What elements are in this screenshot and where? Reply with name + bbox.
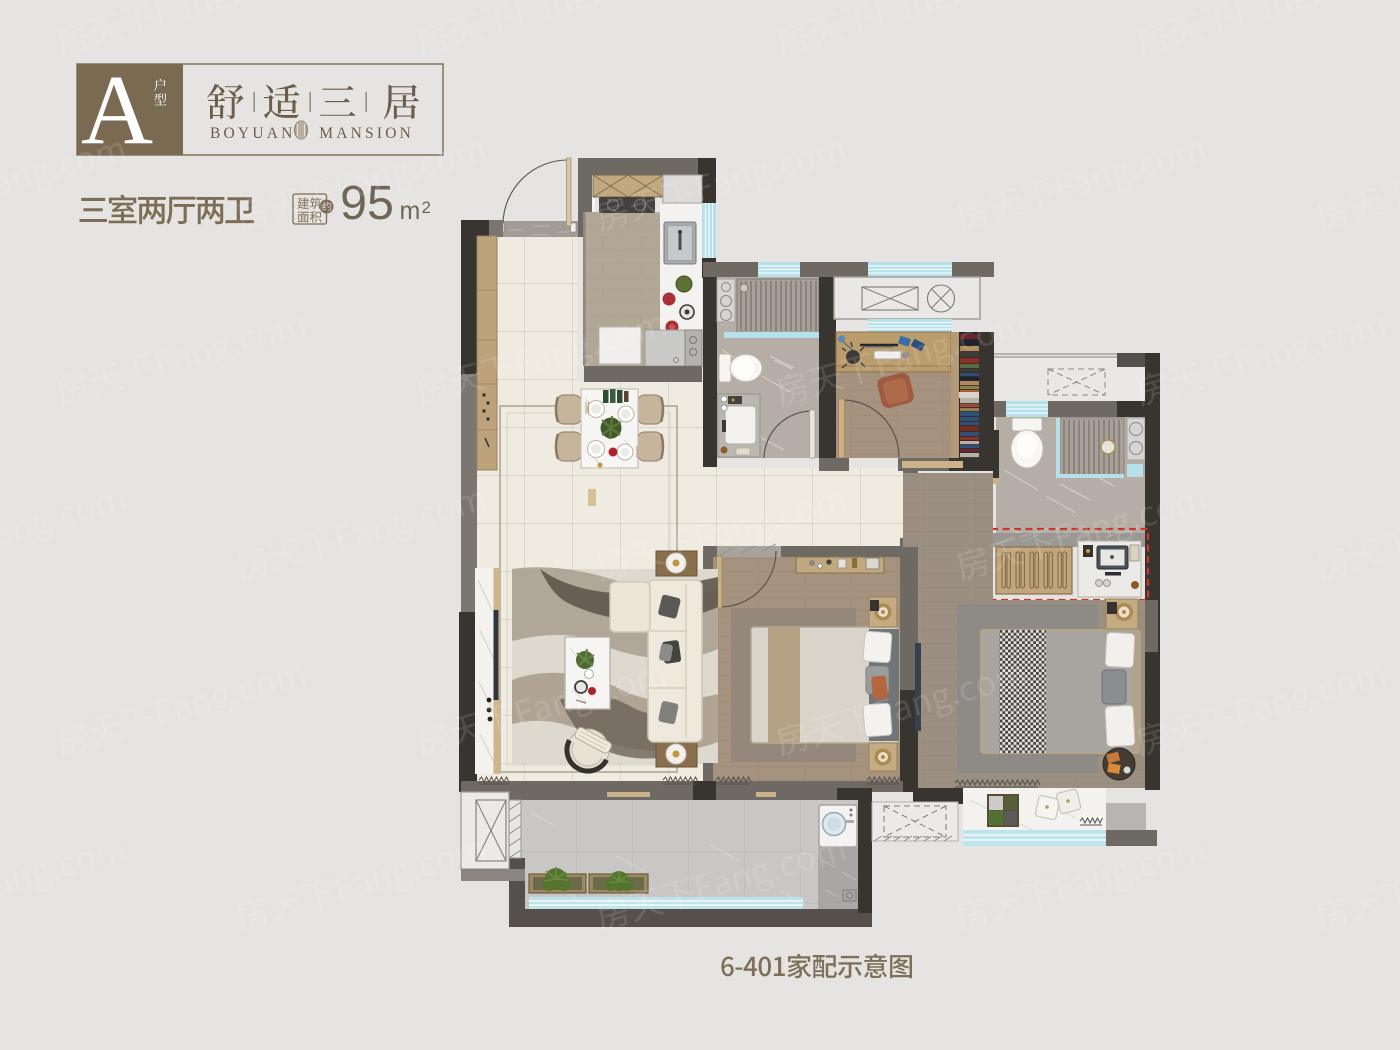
svg-text:MANSION: MANSION — [319, 125, 414, 142]
svg-text:m: m — [400, 197, 421, 225]
svg-text:A: A — [81, 54, 153, 165]
svg-text:BOYUAN: BOYUAN — [210, 125, 296, 142]
svg-text:2: 2 — [422, 198, 431, 217]
